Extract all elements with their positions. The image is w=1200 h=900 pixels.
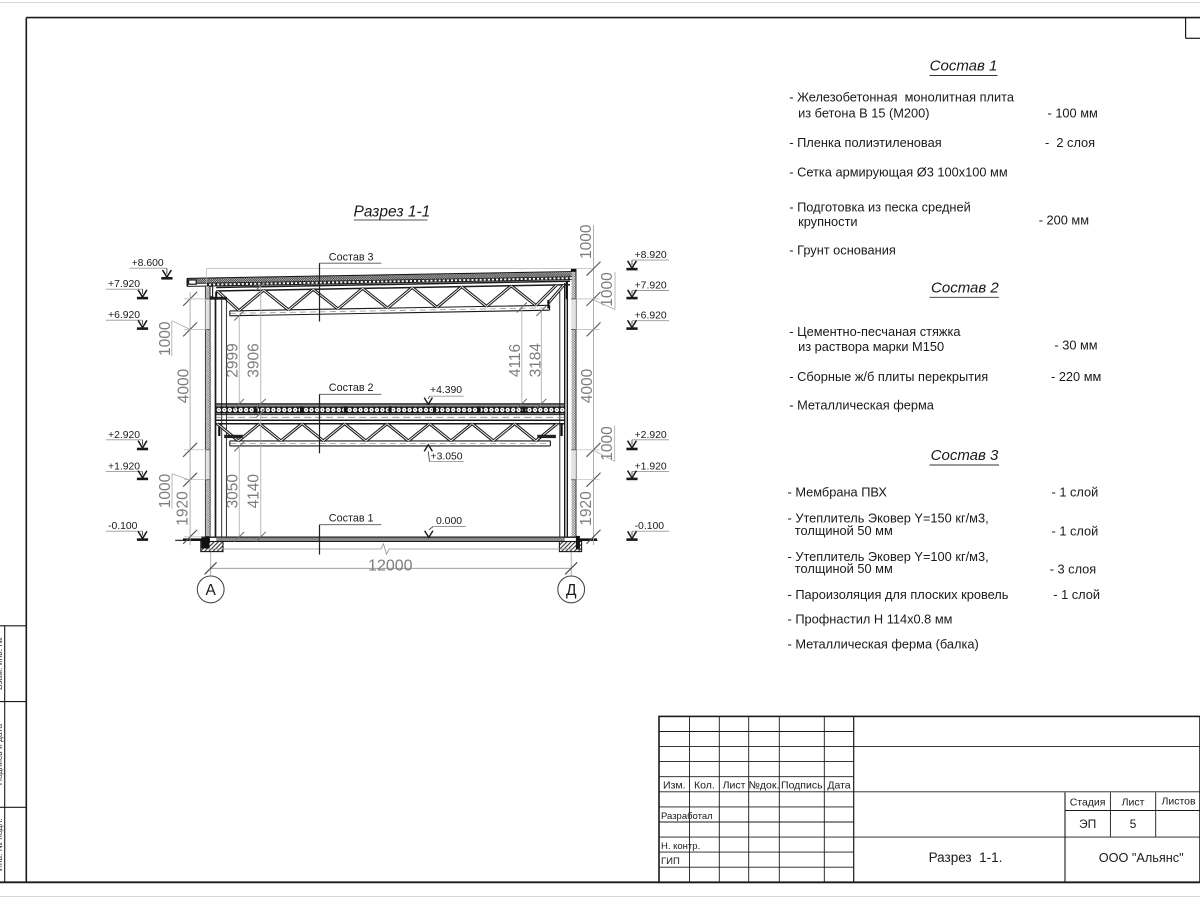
svg-text:Состав 2: Состав 2: [329, 382, 374, 394]
svg-text:3050: 3050: [225, 474, 242, 509]
svg-text:1000: 1000: [599, 426, 616, 461]
svg-text:- Грунт основания: - Грунт основания: [789, 243, 896, 258]
svg-text:Состав 1: Состав 1: [930, 58, 998, 75]
svg-text:толщиной 50 мм: толщиной 50 мм: [795, 561, 893, 576]
svg-text:2999: 2999: [225, 343, 242, 377]
svg-text:-0.100: -0.100: [108, 521, 138, 532]
svg-text:3906: 3906: [246, 343, 263, 377]
svg-text:№док.: №док.: [749, 779, 780, 791]
svg-text:Разрез 1-1.: Разрез 1-1.: [929, 850, 1003, 865]
svg-text:- 100 мм: - 100 мм: [1048, 105, 1098, 120]
svg-text:- 2 слоя: - 2 слоя: [1045, 135, 1095, 150]
svg-text:Подпись и дата: Подпись и дата: [0, 724, 4, 785]
svg-text:А: А: [206, 582, 217, 599]
svg-text:- Профнастил Н 114х0.8 мм: - Профнастил Н 114х0.8 мм: [788, 612, 953, 627]
svg-text:+8.600: +8.600: [132, 258, 164, 269]
svg-text:+4.390: +4.390: [430, 385, 462, 396]
svg-text:- Цементно-песчаная стяжка: - Цементно-песчаная стяжка: [789, 324, 961, 339]
svg-text:Инв. № подл.: Инв. № подл.: [0, 818, 4, 871]
svg-text:Разрез 1-1: Разрез 1-1: [354, 204, 431, 221]
svg-text:+6.920: +6.920: [635, 311, 667, 322]
svg-text:4000: 4000: [175, 368, 192, 403]
svg-text:12000: 12000: [368, 557, 413, 574]
svg-text:- Металлическая ферма (балка): - Металлическая ферма (балка): [788, 636, 979, 651]
svg-text:- Пароизоляция для плоских кро: - Пароизоляция для плоских кровель: [788, 587, 1009, 602]
svg-text:- 220 мм: - 220 мм: [1051, 369, 1101, 384]
svg-text:ООО "Альянс": ООО "Альянс": [1099, 851, 1184, 865]
svg-text:- Металлическая ферма: - Металлическая ферма: [789, 398, 934, 413]
svg-text:Состав 3: Состав 3: [329, 252, 374, 264]
svg-text:4116: 4116: [507, 344, 524, 377]
svg-text:Дата: Дата: [827, 779, 850, 791]
svg-text:Состав 1: Состав 1: [329, 512, 374, 524]
svg-text:+2.920: +2.920: [108, 430, 140, 441]
svg-text:Состав 2: Состав 2: [931, 279, 999, 296]
svg-text:1920: 1920: [174, 491, 191, 526]
svg-text:- 1 слой: - 1 слой: [1052, 484, 1099, 499]
svg-text:- 30 мм: - 30 мм: [1054, 338, 1097, 353]
svg-text:+3.050: +3.050: [431, 451, 463, 462]
svg-text:3184: 3184: [527, 343, 544, 378]
svg-text:- Мембрана ПВХ: - Мембрана ПВХ: [788, 484, 888, 499]
svg-text:- 1 слой: - 1 слой: [1053, 587, 1100, 602]
svg-text:+7.920: +7.920: [635, 281, 667, 292]
svg-text:- Пленка полиэтиленовая: - Пленка полиэтиленовая: [789, 135, 941, 150]
svg-text:Кол.: Кол.: [694, 779, 715, 791]
svg-text:+2.920: +2.920: [635, 430, 667, 441]
svg-text:1920: 1920: [578, 491, 595, 526]
svg-text:- Подготовка из песка средней: - Подготовка из песка средней: [789, 200, 970, 215]
svg-text:1000: 1000: [578, 224, 595, 259]
svg-text:из раствора марки М150: из раствора марки М150: [798, 339, 944, 354]
svg-text:- 3 слоя: - 3 слоя: [1050, 562, 1097, 577]
svg-text:1000: 1000: [157, 473, 174, 508]
svg-text:Взам. инв. №: Взам. инв. №: [0, 637, 4, 690]
svg-text:4140: 4140: [246, 474, 263, 509]
svg-text:Н. контр.: Н. контр.: [661, 841, 700, 852]
svg-text:+8.920: +8.920: [635, 250, 667, 261]
svg-text:-0.100: -0.100: [635, 521, 665, 532]
svg-text:- Сборные ж/б плиты перекрытия: - Сборные ж/б плиты перекрытия: [789, 369, 988, 384]
svg-text:- Сетка армирующая Ø3 100х100: - Сетка армирующая Ø3 100х100 мм: [789, 165, 1007, 180]
svg-text:Лист: Лист: [723, 779, 746, 791]
svg-text:Разработал: Разработал: [661, 811, 713, 822]
svg-text:- Железобетонная монолитная п: - Железобетонная монолитная плита: [789, 90, 1015, 105]
svg-text:Лист: Лист: [1122, 796, 1145, 808]
svg-text:Д: Д: [566, 582, 577, 599]
svg-text:Стадия: Стадия: [1070, 796, 1106, 808]
svg-text:- 200 мм: - 200 мм: [1039, 213, 1089, 228]
svg-text:4000: 4000: [579, 368, 596, 403]
svg-text:ГИП: ГИП: [661, 856, 680, 867]
svg-text:Листов: Листов: [1161, 795, 1196, 807]
svg-text:5: 5: [1130, 817, 1137, 831]
svg-text:крупности: крупности: [798, 214, 858, 229]
svg-text:Изм.: Изм.: [663, 779, 686, 791]
svg-text:1000: 1000: [599, 272, 616, 307]
svg-text:1000: 1000: [157, 321, 174, 356]
svg-text:Состав 3: Состав 3: [931, 447, 999, 464]
svg-text:- 1 слой: - 1 слой: [1052, 524, 1099, 539]
svg-text:0.000: 0.000: [436, 516, 462, 527]
svg-text:из бетона В 15 (М200): из бетона В 15 (М200): [798, 105, 929, 120]
svg-text:+7.920: +7.920: [108, 279, 140, 290]
svg-text:+1.920: +1.920: [108, 461, 140, 472]
svg-text:толщиной 50 мм: толщиной 50 мм: [795, 523, 893, 538]
svg-text:+6.920: +6.920: [108, 310, 140, 321]
svg-text:+1.920: +1.920: [635, 461, 667, 472]
svg-text:Подпись: Подпись: [781, 779, 823, 791]
svg-text:ЭП: ЭП: [1079, 817, 1096, 831]
